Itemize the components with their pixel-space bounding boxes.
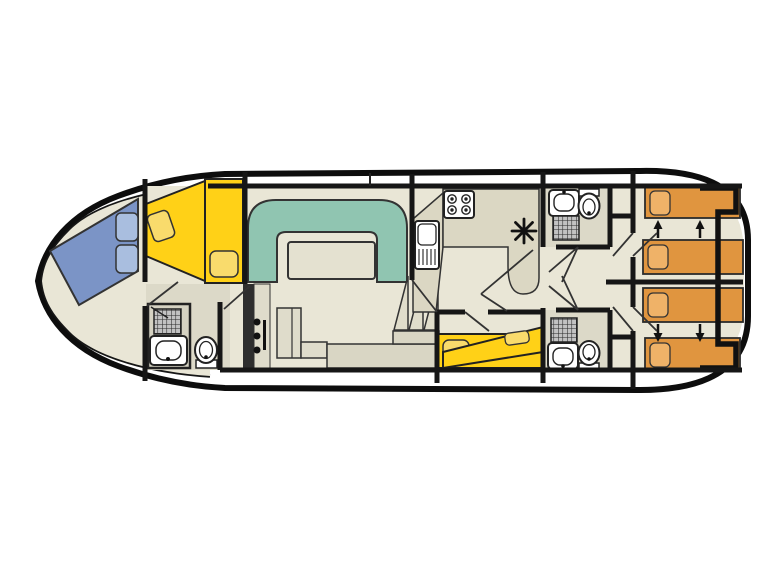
shower-grid-icon — [553, 216, 579, 240]
tall-cabinet — [277, 308, 301, 358]
pillow-orange-2 — [648, 245, 668, 269]
dresser-knob-2 — [254, 333, 261, 340]
dresser-light-panel — [254, 284, 270, 370]
washbasin-tap-dot — [561, 364, 565, 368]
toilet-dot — [587, 211, 591, 215]
pillow-orange-1 — [650, 191, 670, 215]
shower-grid-icon — [154, 309, 181, 334]
pillow-orange-3 — [648, 293, 668, 317]
dresser-knob-1 — [254, 319, 261, 326]
boat-floor-plan — [0, 0, 768, 576]
washbasin-tap-dot — [562, 190, 566, 194]
washbasin-tap-dot — [166, 357, 170, 361]
dresser-handle-bar — [263, 320, 266, 350]
mid-cabin — [437, 327, 543, 368]
sideboard — [327, 344, 439, 368]
step-base — [393, 331, 439, 344]
pillow-orange-4 — [650, 343, 670, 367]
toilet-dot — [204, 355, 208, 359]
dresser-knob-3 — [254, 347, 261, 354]
blue-pillow-1 — [116, 213, 138, 241]
floor-plan-canvas — [0, 0, 768, 576]
shower-grid-icon — [551, 318, 577, 342]
yellow-pillow-foot — [210, 251, 238, 277]
salon-table — [288, 242, 375, 279]
blue-pillow-2 — [116, 245, 138, 273]
vent-mark-asterisk — [512, 219, 536, 243]
stove-icon — [444, 191, 474, 218]
low-cabinet — [301, 342, 327, 358]
toilet-dot — [587, 357, 591, 361]
mid-berth-pillow-2 — [504, 330, 529, 345]
dresser-dark-panel — [243, 284, 254, 370]
